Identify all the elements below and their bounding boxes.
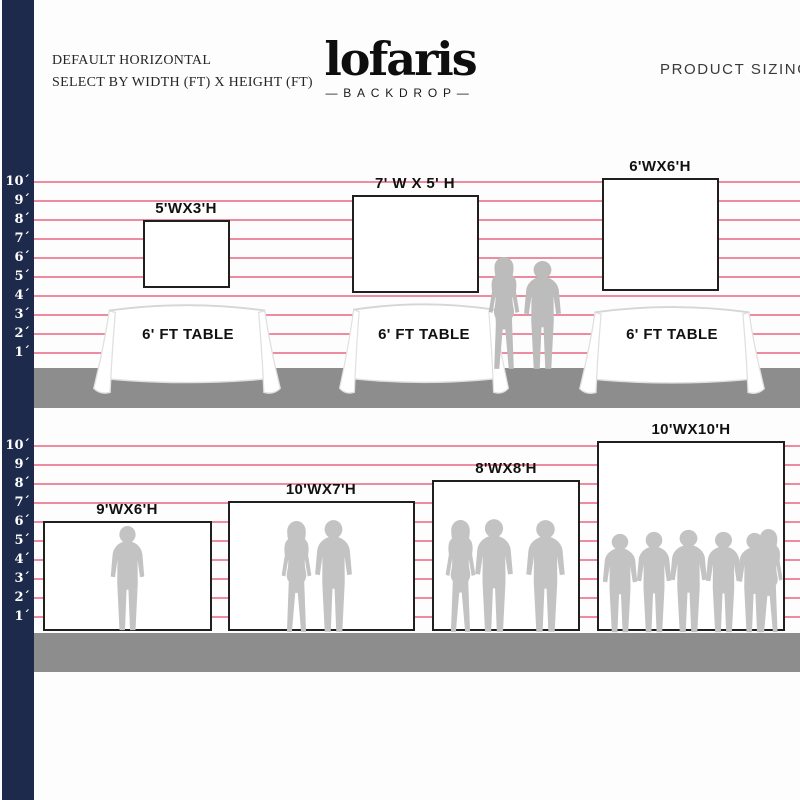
person-silhouette-man [520,259,565,373]
ruler-label-8ft: 8´ [0,475,30,493]
brand-name: lofaris [300,34,500,84]
selection-instructions: DEFAULT HORIZONTAL SELECT BY WIDTH (FT) … [52,50,322,93]
ruler-label-8ft: 8´ [0,211,30,229]
ground-bar [34,633,800,672]
table-label: 6' FT TABLE [592,326,752,343]
brand-tagline: —BACKDROP— [300,86,500,100]
brand-logo: lofaris —BACKDROP— [300,34,500,100]
backdrop-size-label: 10'WX7'H [241,481,401,498]
person-silhouette-man [522,518,569,636]
ruler-label-3ft: 3´ [0,570,30,588]
ruler-label-3ft: 3´ [0,306,30,324]
instruction-line-2: SELECT BY WIDTH (FT) X HEIGHT (FT) [52,72,322,94]
ruler-label-1ft: 1´ [0,344,30,362]
backdrop-size-label: 5'WX3'H [106,200,266,217]
ruler-label-7ft: 7´ [0,494,30,512]
backdrop-size-label: 9'WX6'H [47,501,207,518]
ruler-bar [2,0,34,800]
ruler-label-4ft: 4´ [0,551,30,569]
ruler-label-10ft: 10´ [0,173,30,191]
ruler-label-1ft: 1´ [0,608,30,626]
tagline-dash-right: — [457,86,475,100]
tagline-dash-left: — [326,86,344,100]
backdrop-6x6 [602,178,719,291]
ruler-label-9ft: 9´ [0,456,30,474]
ruler-label-7ft: 7´ [0,230,30,248]
person-silhouette-woman [750,529,787,636]
backdrop-size-label: 6'WX6'H [580,158,740,175]
backdrop-size-label: 7' W X 5' H [335,175,495,192]
ruler-label-5ft: 5´ [0,268,30,286]
ruler-label-9ft: 9´ [0,192,30,210]
table-label: 6' FT TABLE [108,326,268,343]
instruction-line-1: DEFAULT HORIZONTAL [52,50,322,72]
table-with-cloth [92,295,282,402]
table-with-cloth [578,297,766,402]
person-silhouette-man [107,524,148,634]
product-sizing-infographic: DEFAULT HORIZONTAL SELECT BY WIDTH (FT) … [0,0,800,800]
ruler-label-10ft: 10´ [0,437,30,455]
page-title: PRODUCT SIZING [660,61,795,78]
ruler-label-2ft: 2´ [0,325,30,343]
backdrop-size-label: 8'WX8'H [426,460,586,477]
ruler-label-6ft: 6´ [0,513,30,531]
backdrop-5x3 [143,220,230,288]
ruler-label-5ft: 5´ [0,532,30,550]
ruler-label-4ft: 4´ [0,287,30,305]
backdrop-size-label: 10'WX10'H [611,421,771,438]
person-silhouette-man [311,518,356,636]
tagline-text: BACKDROP [343,86,456,100]
backdrop-7x5 [352,195,479,293]
table-label: 6' FT TABLE [344,326,504,343]
person-silhouette-man [471,517,517,636]
person-silhouette-woman [484,257,524,373]
ruler-label-6ft: 6´ [0,249,30,267]
ruler-label-2ft: 2´ [0,589,30,607]
